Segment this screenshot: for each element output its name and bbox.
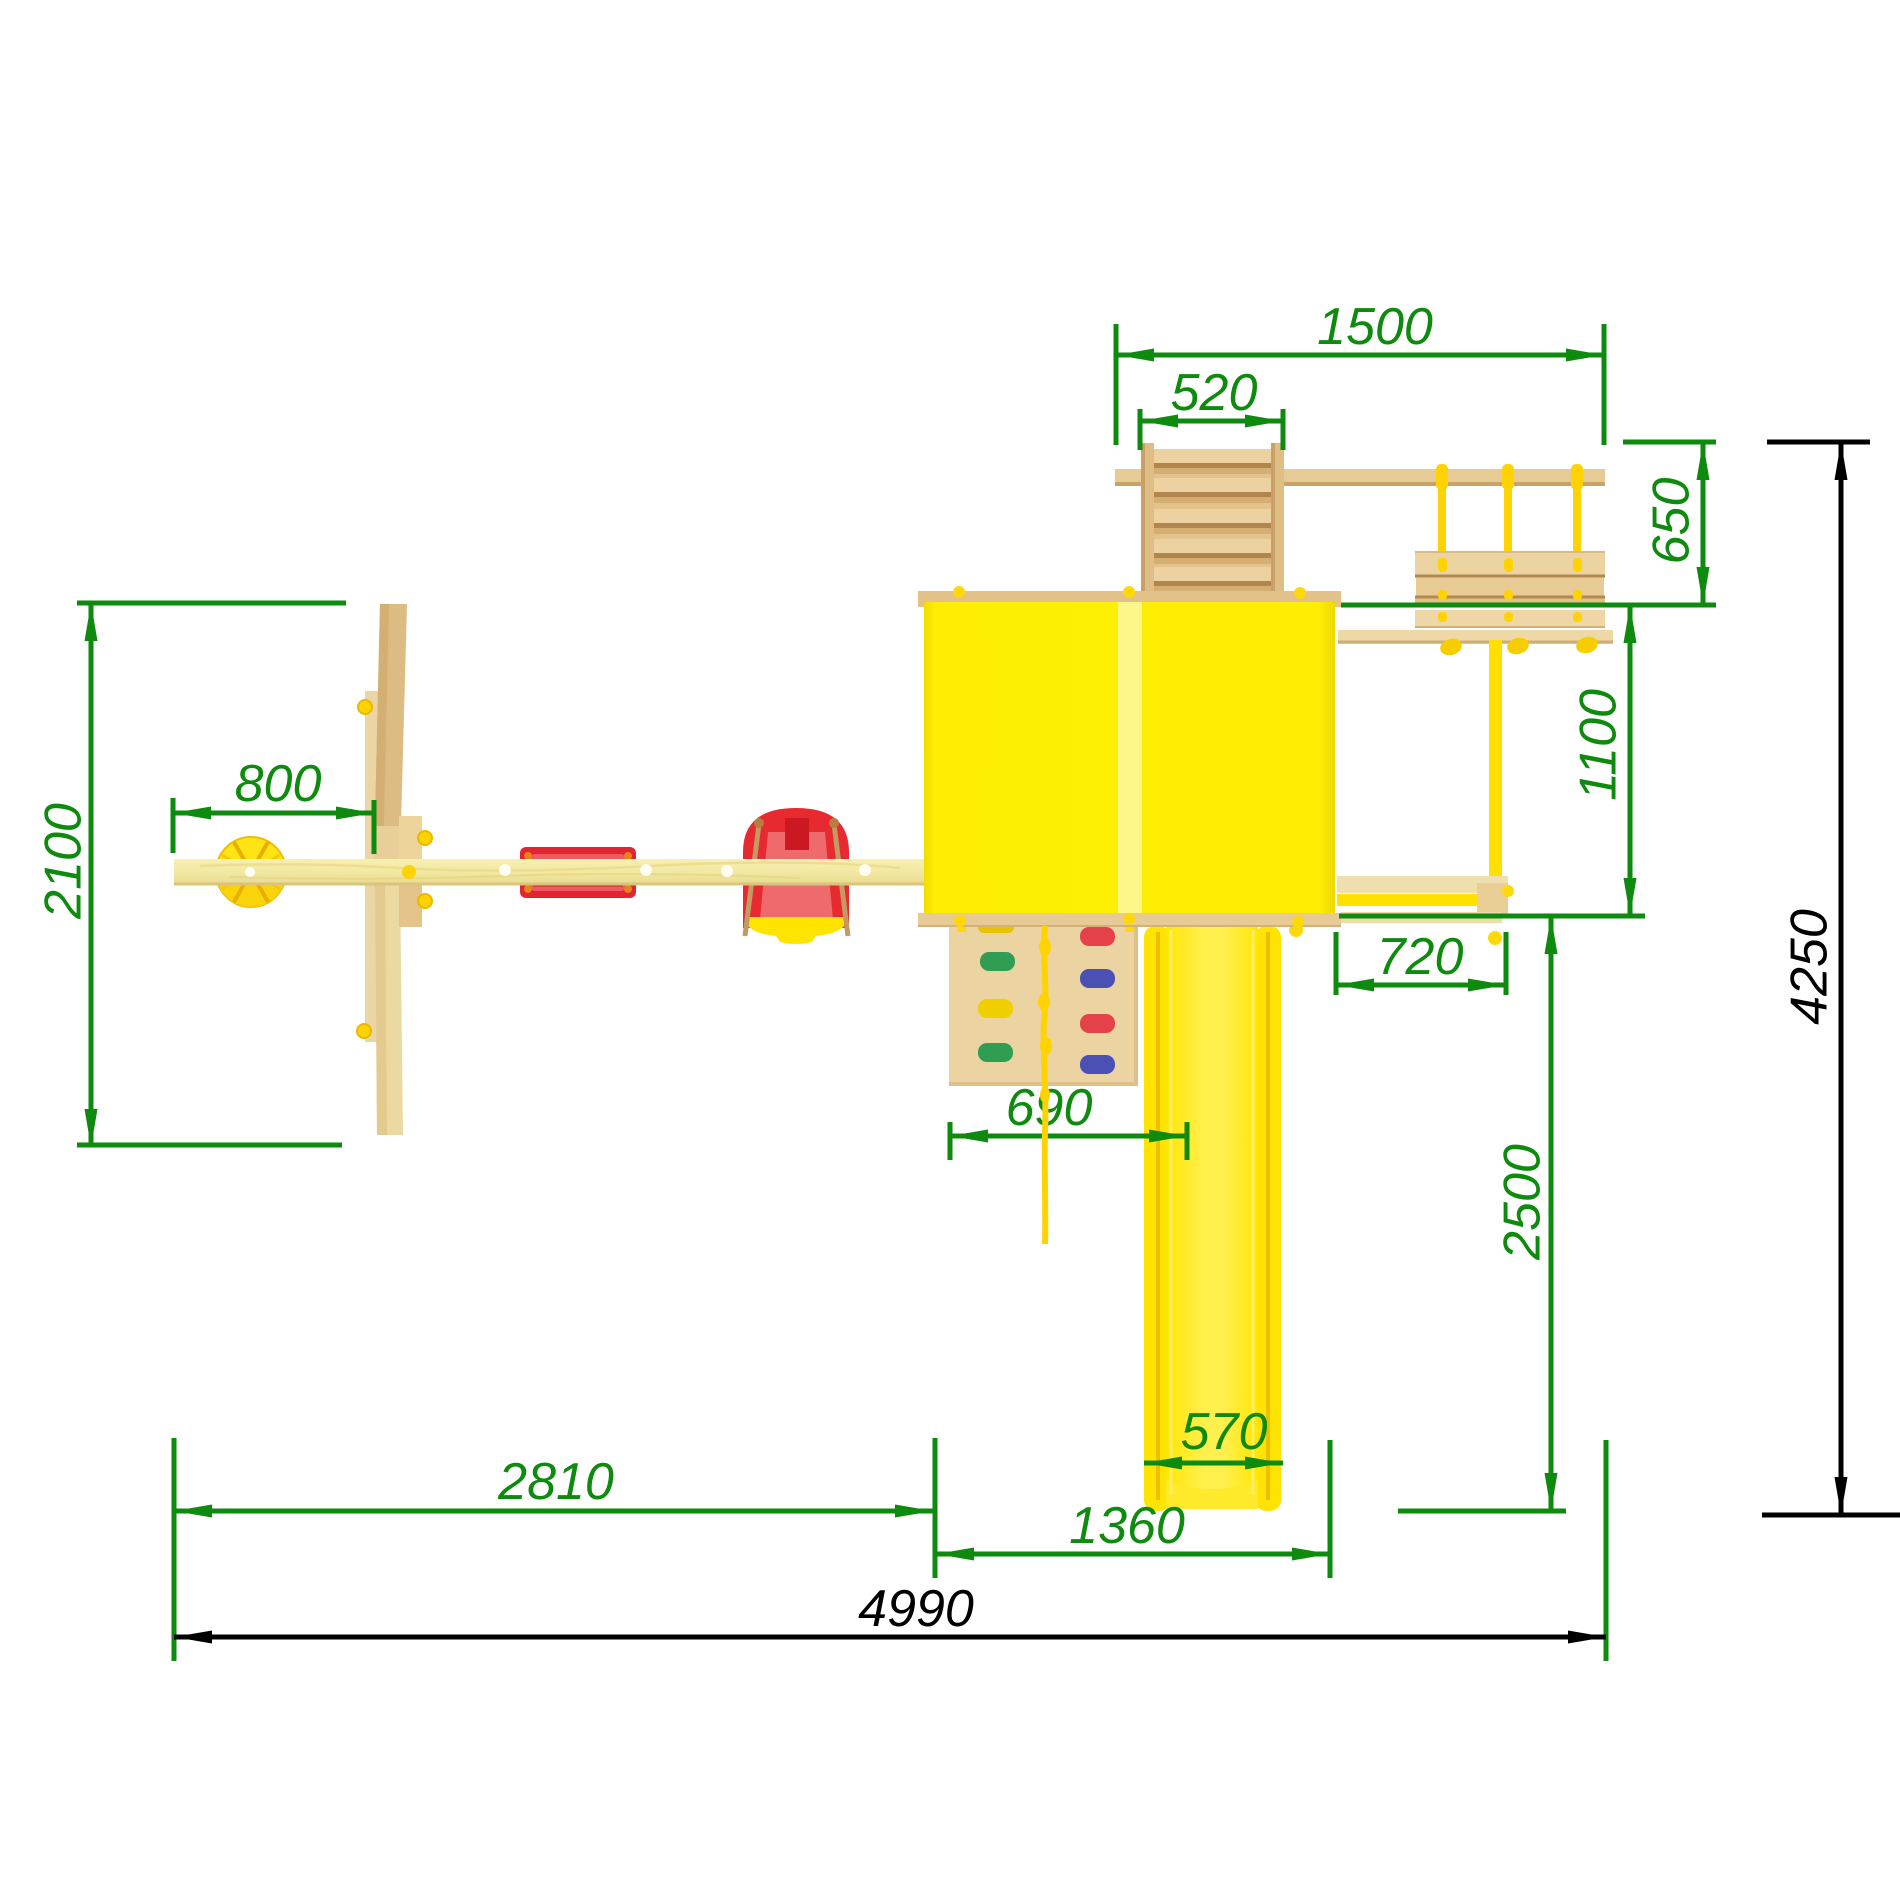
svg-text:2100: 2100: [35, 803, 93, 920]
svg-text:570: 570: [1181, 1403, 1268, 1461]
svg-text:4250: 4250: [1781, 909, 1839, 1025]
svg-text:650: 650: [1643, 478, 1701, 565]
svg-text:2810: 2810: [497, 1453, 614, 1511]
svg-text:1360: 1360: [1069, 1497, 1185, 1555]
svg-text:4990: 4990: [858, 1580, 974, 1638]
svg-text:2500: 2500: [1494, 1144, 1552, 1261]
svg-text:1500: 1500: [1317, 298, 1433, 356]
svg-text:1100: 1100: [1570, 689, 1628, 801]
svg-text:520: 520: [1171, 364, 1258, 422]
svg-text:690: 690: [1006, 1079, 1093, 1137]
svg-text:800: 800: [235, 755, 322, 813]
svg-text:720: 720: [1377, 928, 1464, 986]
